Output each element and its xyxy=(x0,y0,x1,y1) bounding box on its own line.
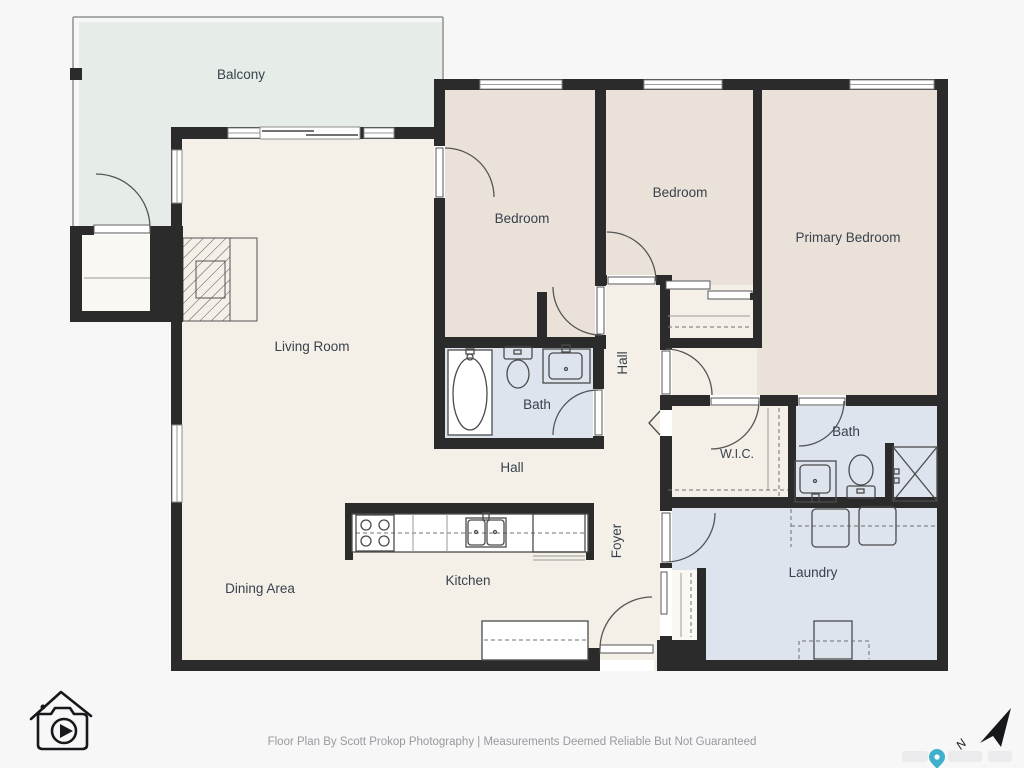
fireplace-icon xyxy=(183,238,257,321)
room-label-balcony: Balcony xyxy=(217,67,265,82)
room-label-bedroom-left: Bedroom xyxy=(495,211,550,226)
footer-credit: Floor Plan By Scott Prokop Photography |… xyxy=(268,736,757,748)
north-arrow-icon xyxy=(980,708,1011,747)
room-label-bath-ensuite: Bath xyxy=(832,424,860,439)
room-label-kitchen: Kitchen xyxy=(445,573,490,588)
ensuite-bath-floor xyxy=(790,395,948,508)
room-label-hall-corridor: Hall xyxy=(615,351,630,374)
floor-plan-canvas: Balcony Living Room Dining Area Kitchen … xyxy=(0,0,1024,768)
bathtub-icon xyxy=(448,349,492,435)
room-label-primary-bedroom: Primary Bedroom xyxy=(795,230,900,245)
compass: N xyxy=(953,708,1011,752)
foyer-closet-sliding-door xyxy=(660,568,672,636)
room-label-dining-area: Dining Area xyxy=(225,581,295,596)
room-label-laundry: Laundry xyxy=(789,565,838,580)
room-label-foyer: Foyer xyxy=(609,523,624,558)
watermark xyxy=(902,749,1012,768)
sliding-glass-door xyxy=(260,127,360,139)
floor-plan-page: Balcony Living Room Dining Area Kitchen … xyxy=(0,0,1024,768)
kitchen-island-counter xyxy=(482,621,588,660)
compass-north-letter: N xyxy=(953,736,969,752)
photographer-logo-icon xyxy=(31,692,91,749)
room-label-living-room: Living Room xyxy=(274,339,349,354)
room-label-wic: W.I.C. xyxy=(720,447,754,461)
room-label-bedroom-middle: Bedroom xyxy=(653,185,708,200)
room-label-hall-lower: Hall xyxy=(500,460,523,475)
room-label-bath-main: Bath xyxy=(523,397,551,412)
map-pin-icon xyxy=(929,749,945,768)
balcony-storage-closet xyxy=(82,235,150,311)
